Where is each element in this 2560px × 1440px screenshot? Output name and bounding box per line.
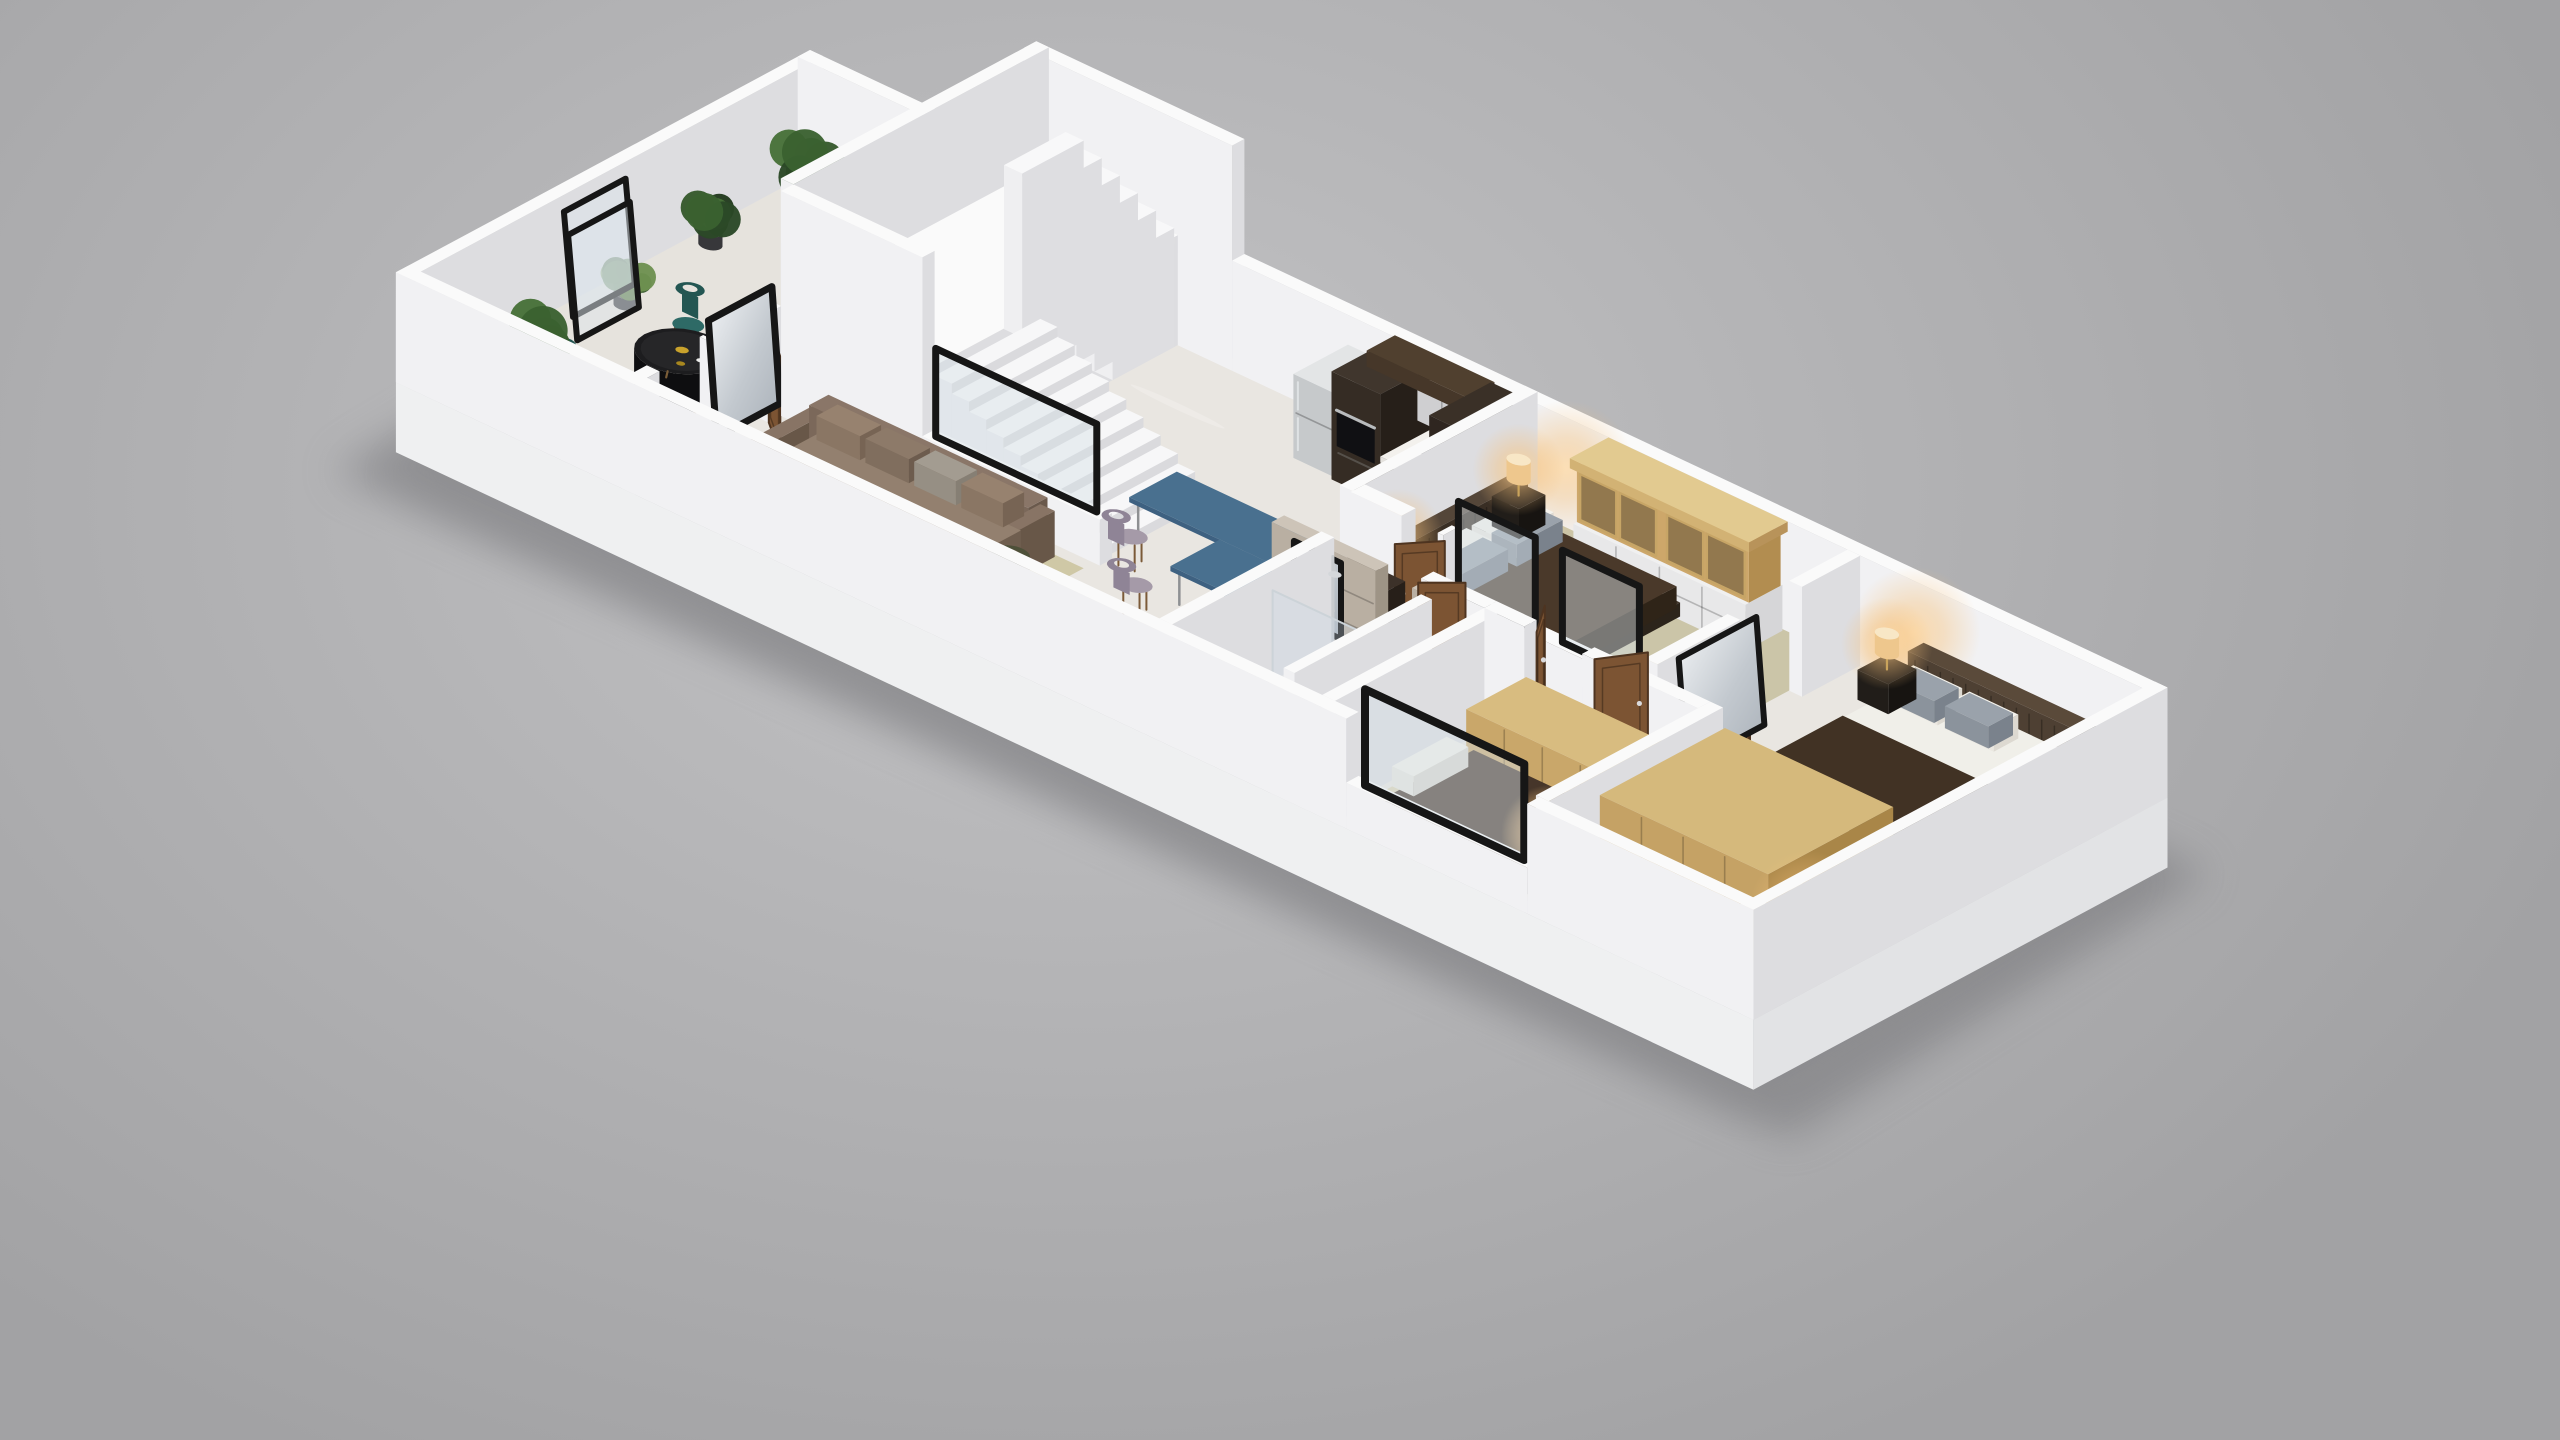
bed1-lamp-1 <box>1473 424 1565 516</box>
floor-plan-render <box>0 0 2560 1440</box>
bed2-lamp <box>1841 597 1933 689</box>
floor-plan-canvas <box>0 0 2560 1440</box>
